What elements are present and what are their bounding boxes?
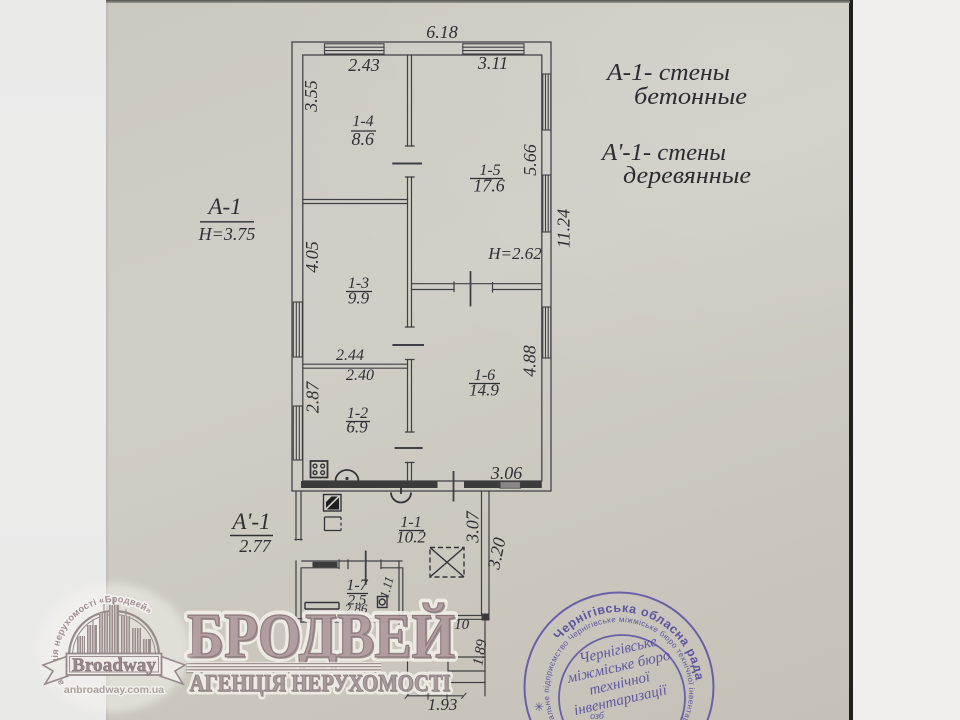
- svg-text:озб: озб: [590, 711, 605, 720]
- svg-text:✳: ✳: [534, 700, 544, 714]
